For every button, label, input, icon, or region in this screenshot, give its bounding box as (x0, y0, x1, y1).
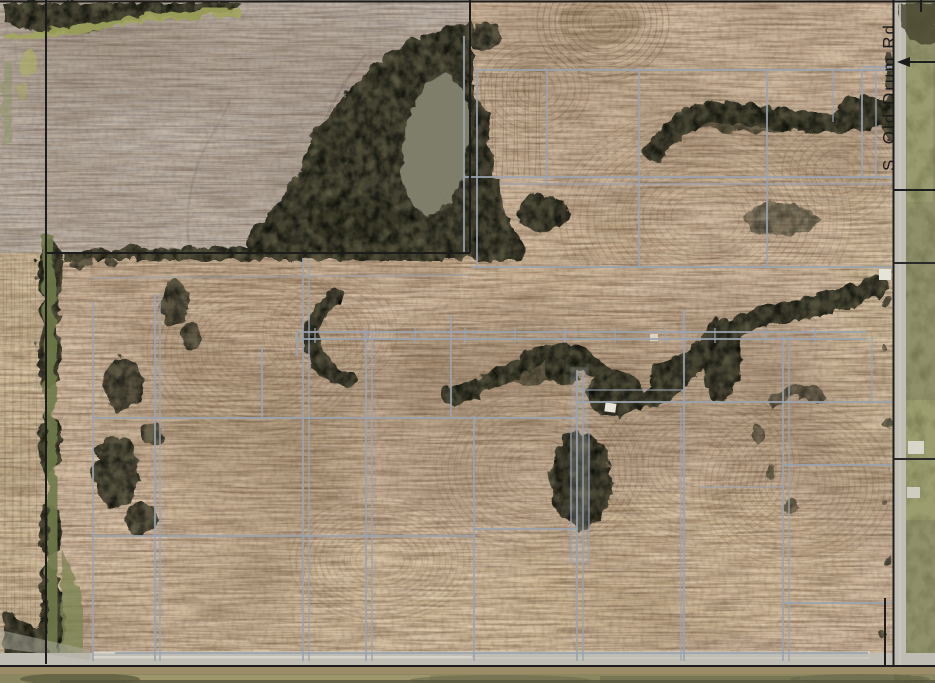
svg-text:S. Old Drum Rd.: S. Old Drum Rd. (880, 16, 899, 171)
